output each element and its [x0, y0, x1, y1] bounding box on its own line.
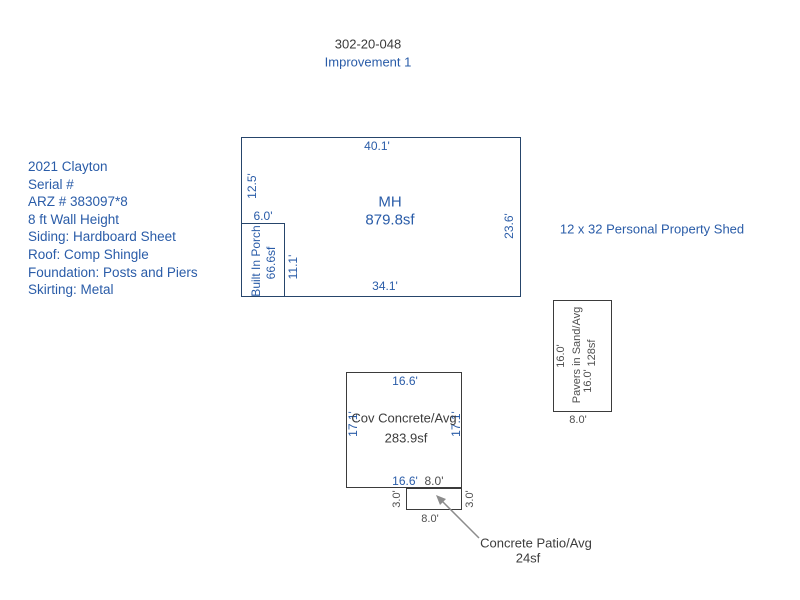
cov-concrete-dim-bottom-left: 16.6' [392, 474, 418, 488]
mh-area: 879.8sf [365, 212, 414, 229]
parcel-number: 302-20-048 [335, 37, 402, 52]
cov-concrete-dim-top: 16.6' [392, 374, 418, 388]
pavers-dim-left: 16.0' [555, 344, 567, 368]
info-line-model: 2021 Clayton [28, 158, 198, 176]
info-line-arz: ARZ # 383097*8 [28, 193, 198, 211]
mh-dim-bottom: 34.1' [372, 279, 398, 293]
pavers-dim-bottom: 8.0' [569, 414, 586, 426]
shed-note: 12 x 32 Personal Property Shed [560, 222, 744, 237]
info-line-wall: 8 ft Wall Height [28, 211, 198, 229]
cov-concrete-area: 283.9sf [385, 431, 428, 446]
mh-dim-top: 40.1' [364, 139, 390, 153]
cov-concrete-name: Cov Concrete/Avg [351, 411, 456, 426]
pavers-area: 128sf [586, 340, 598, 367]
porch-dim-top: 6.0' [254, 209, 273, 223]
pavers-dim-right: 16.0' [582, 369, 594, 393]
porch-dim-right: 11.1' [286, 255, 300, 280]
porch-name: Built In Porch [249, 225, 263, 296]
patio-dim-left: 3.0' [391, 490, 403, 507]
improvement-title: Improvement 1 [325, 55, 412, 70]
mh-dim-right: 23.6' [502, 213, 516, 239]
patio-name: Concrete Patio/Avg [480, 536, 592, 551]
info-line-skirting: Skirting: Metal [28, 281, 198, 299]
info-line-roof: Roof: Comp Shingle [28, 246, 198, 264]
patio-area: 24sf [516, 551, 541, 566]
cov-concrete-dim-bottom-right: 8.0' [425, 474, 444, 488]
porch-outline [241, 223, 285, 297]
info-line-foundation: Foundation: Posts and Piers [28, 264, 198, 282]
property-sketch-page: 302-20-048 Improvement 1 2021 Clayton Se… [0, 0, 800, 600]
mh-name: MH [378, 194, 401, 211]
porch-area: 66.6sf [264, 247, 278, 280]
mh-dim-left-upper: 12.5' [245, 173, 259, 199]
info-line-siding: Siding: Hardboard Sheet [28, 228, 198, 246]
property-info-block: 2021 Clayton Serial # ARZ # 383097*8 8 f… [28, 158, 198, 299]
info-line-serial: Serial # [28, 176, 198, 194]
